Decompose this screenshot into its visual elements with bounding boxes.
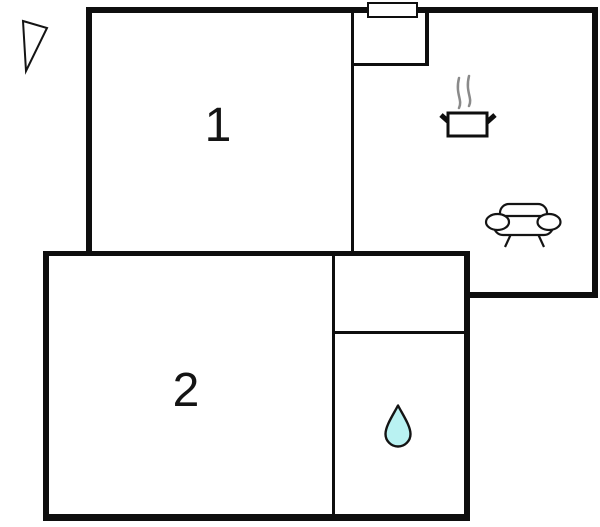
- wall-bathroom-hall-divider: [335, 331, 464, 334]
- sofa-icon: [484, 200, 562, 250]
- room2-label: 2: [173, 367, 200, 415]
- cooking-pot-icon: [436, 70, 500, 140]
- floor-plan: 1 2: [0, 0, 600, 527]
- steam-line: [458, 78, 460, 108]
- wall-livingroom-bottom: [464, 292, 598, 298]
- wall-right: [592, 7, 598, 298]
- north-arrow-icon: [16, 16, 52, 76]
- wall-closet-bottom: [351, 63, 429, 66]
- wall-room2-bathroom-divider: [332, 256, 335, 514]
- wall-room2-top: [43, 251, 470, 256]
- wall-room2-left: [43, 251, 49, 521]
- wall-top: [86, 7, 598, 13]
- wall-bottom: [43, 514, 470, 521]
- water-drop-icon: [382, 403, 414, 448]
- window-symbol: [367, 2, 418, 18]
- steam-line: [468, 76, 470, 106]
- wall-room1-kitchen-divider: [351, 13, 354, 255]
- room1-label: 1: [205, 102, 232, 150]
- wall-room1-left: [86, 7, 92, 255]
- wall-closet-right: [425, 13, 429, 66]
